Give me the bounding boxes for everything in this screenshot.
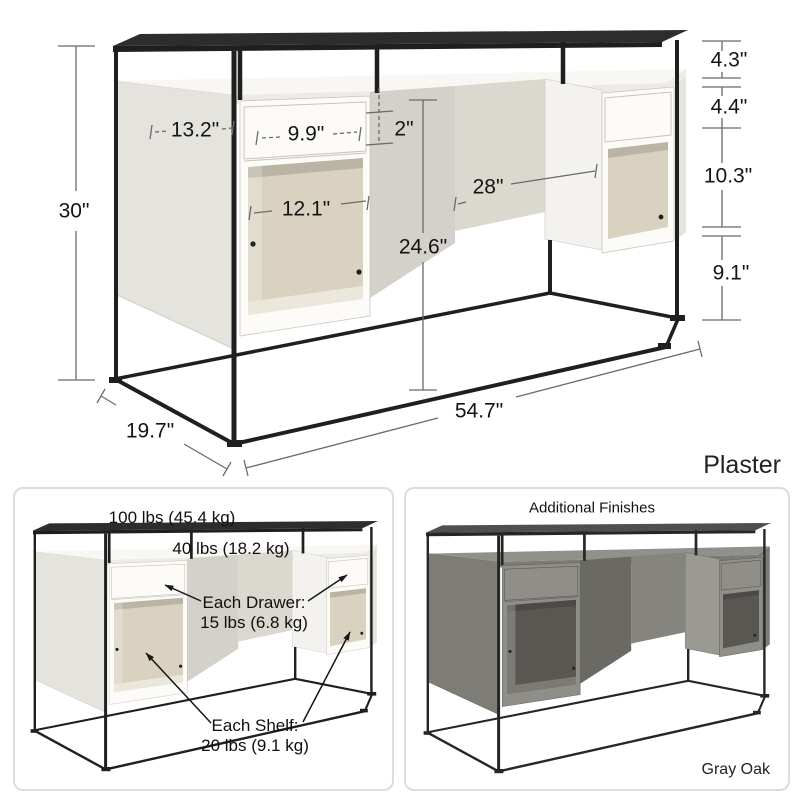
finish-label-gray-oak: Gray Oak (702, 761, 770, 779)
dim-riser-height: 4.3" (711, 50, 748, 71)
dim-knee-width: 28" (473, 177, 504, 198)
dim-drawer-height: 4.4" (711, 97, 748, 118)
gray-oak-desk-illustration (406, 489, 788, 789)
desktop-capacity-label: 40 lbs (18.2 kg) (172, 539, 289, 559)
dim-drawer-width: 9.9" (288, 124, 325, 145)
additional-finishes-panel: Additional Finishes Gray Oak (404, 487, 790, 791)
shelf-capacity-label: Each Shelf: 20 lbs (9.1 kg) (201, 716, 309, 756)
dim-top-gap: 2" (394, 119, 413, 140)
shelf-capacity-value: 20 lbs (9.1 kg) (201, 736, 309, 756)
finish-label-plaster: Plaster (703, 451, 781, 480)
drawer-capacity-value: 15 lbs (6.8 kg) (200, 613, 308, 633)
dim-overall-width: 54.7" (455, 401, 503, 422)
shelf-capacity-title: Each Shelf: (201, 716, 309, 736)
dim-shelf-width: 12.1" (282, 199, 330, 220)
drawer-capacity-title: Each Drawer: (200, 593, 308, 613)
top-shelf-capacity-label: 100 lbs (45.4 kg) (109, 508, 236, 528)
dim-overall-height: 30" (59, 201, 90, 222)
weight-capacity-panel: 100 lbs (45.4 kg) 40 lbs (18.2 kg) Each … (13, 487, 394, 791)
dim-overall-depth: 19.7" (126, 421, 174, 442)
finishes-panel-title: Additional Finishes (529, 500, 655, 517)
dim-base-clearance: 9.1" (713, 263, 750, 284)
dim-side-depth: 13.2" (171, 120, 219, 141)
product-dimension-sheet: 30" 13.2" 9.9" 2" 28" 12.1" 24.6" 4.3" 4… (0, 0, 800, 800)
gray-oak-desk-graphic (424, 523, 771, 773)
drawer-capacity-label: Each Drawer: 15 lbs (6.8 kg) (200, 593, 308, 633)
dim-cubby-height: 10.3" (704, 166, 752, 187)
dim-knee-height: 24.6" (399, 237, 447, 258)
